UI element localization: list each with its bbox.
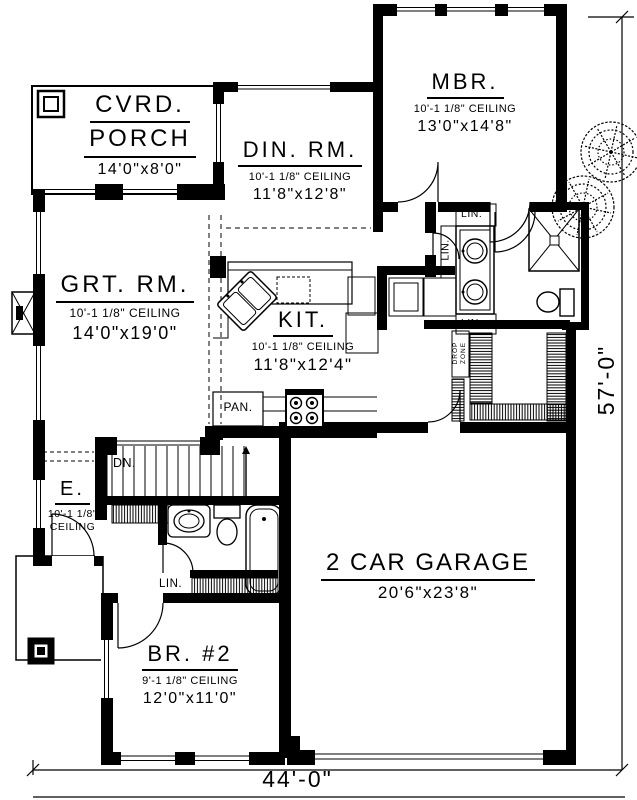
room-size: 14'0"x8'0" (55, 161, 225, 179)
fireplace (12, 292, 35, 334)
room-ceiling: 9'-1 1/8" CEILING (105, 675, 275, 687)
linen-label: LIN. (159, 578, 182, 590)
room-label-entry: E. 10'-1 1/8" CEILING (30, 478, 115, 533)
room-size: 11'8"x12'8" (225, 186, 375, 204)
room-ceiling: 10'-1 1/8" CEILING (390, 103, 540, 115)
room-label-garage: 2 CAR GARAGE 20'6"x23'8" (318, 550, 538, 603)
overall-depth-dimension: 57'-0" (593, 325, 619, 435)
room-size: 11'8"x12'4" (228, 356, 378, 375)
room-label-master-bedroom: MBR. 10'-1 1/8" CEILING 13'0"x14'8" (390, 70, 540, 136)
room-size: 13'0"x14'8" (390, 118, 540, 136)
floor-plan: CVRD. PORCH 14'0"x8'0" DIN. RM. 10'-1 1/… (0, 0, 637, 800)
room-name: 2 CAR GARAGE (321, 550, 535, 581)
stairs (107, 441, 250, 500)
room-name: KIT. (273, 308, 333, 337)
room-name: BR. #2 (142, 642, 237, 671)
room-ceiling: 10'-1 1/8" CEILING (228, 341, 378, 353)
room-name: PORCH (84, 126, 196, 157)
drop-zone-line1: DROP (452, 342, 459, 365)
drop-zone-label: DROP ZONE (452, 325, 470, 381)
room-label-kitchen: KIT. 10'-1 1/8" CEILING 11'8"x12'4" (228, 308, 378, 375)
room-name: GRT. RM. (56, 272, 195, 303)
master-bath-fixtures (441, 204, 579, 334)
room-label-dining: DIN. RM. 10'-1 1/8" CEILING 11'8"x12'8" (225, 138, 375, 204)
linen-label: LIN. (440, 239, 452, 260)
linen-label: LIN. (461, 208, 482, 220)
room-size: 14'0"x19'0" (45, 324, 205, 344)
tree-icon (581, 122, 637, 182)
room-ceiling: 10'-1 1/8" CEILING (225, 171, 375, 183)
pantry-label: PAN. (218, 400, 258, 414)
room-name: DIN. RM. (238, 138, 362, 167)
room-size: 12'0"x11'0" (105, 690, 275, 708)
room-size: 20'6"x23'8" (318, 584, 538, 603)
room-ceiling: 10'-1 1/8" CEILING (45, 307, 205, 320)
room-name: CVRD. (90, 92, 190, 123)
drop-zone-line2: ZONE (460, 342, 467, 364)
stairs-down-label: DN. (113, 456, 136, 470)
room-ceiling: 10'-1 1/8" (30, 509, 115, 521)
room-label-covered-porch: CVRD. PORCH 14'0"x8'0" (55, 92, 225, 178)
room-label-bedroom-2: BR. #2 9'-1 1/8" CEILING 12'0"x11'0" (105, 642, 275, 708)
stoop-outline (16, 556, 103, 664)
room-label-great-room: GRT. RM. 10'-1 1/8" CEILING 14'0"x19'0" (45, 272, 205, 343)
room-name: E. (55, 478, 90, 505)
hall-closet-shelves (112, 505, 168, 523)
room-name: MBR. (427, 70, 504, 99)
room-ceiling: CEILING (30, 522, 115, 534)
overall-width-dimension: 44'-0" (240, 766, 355, 793)
